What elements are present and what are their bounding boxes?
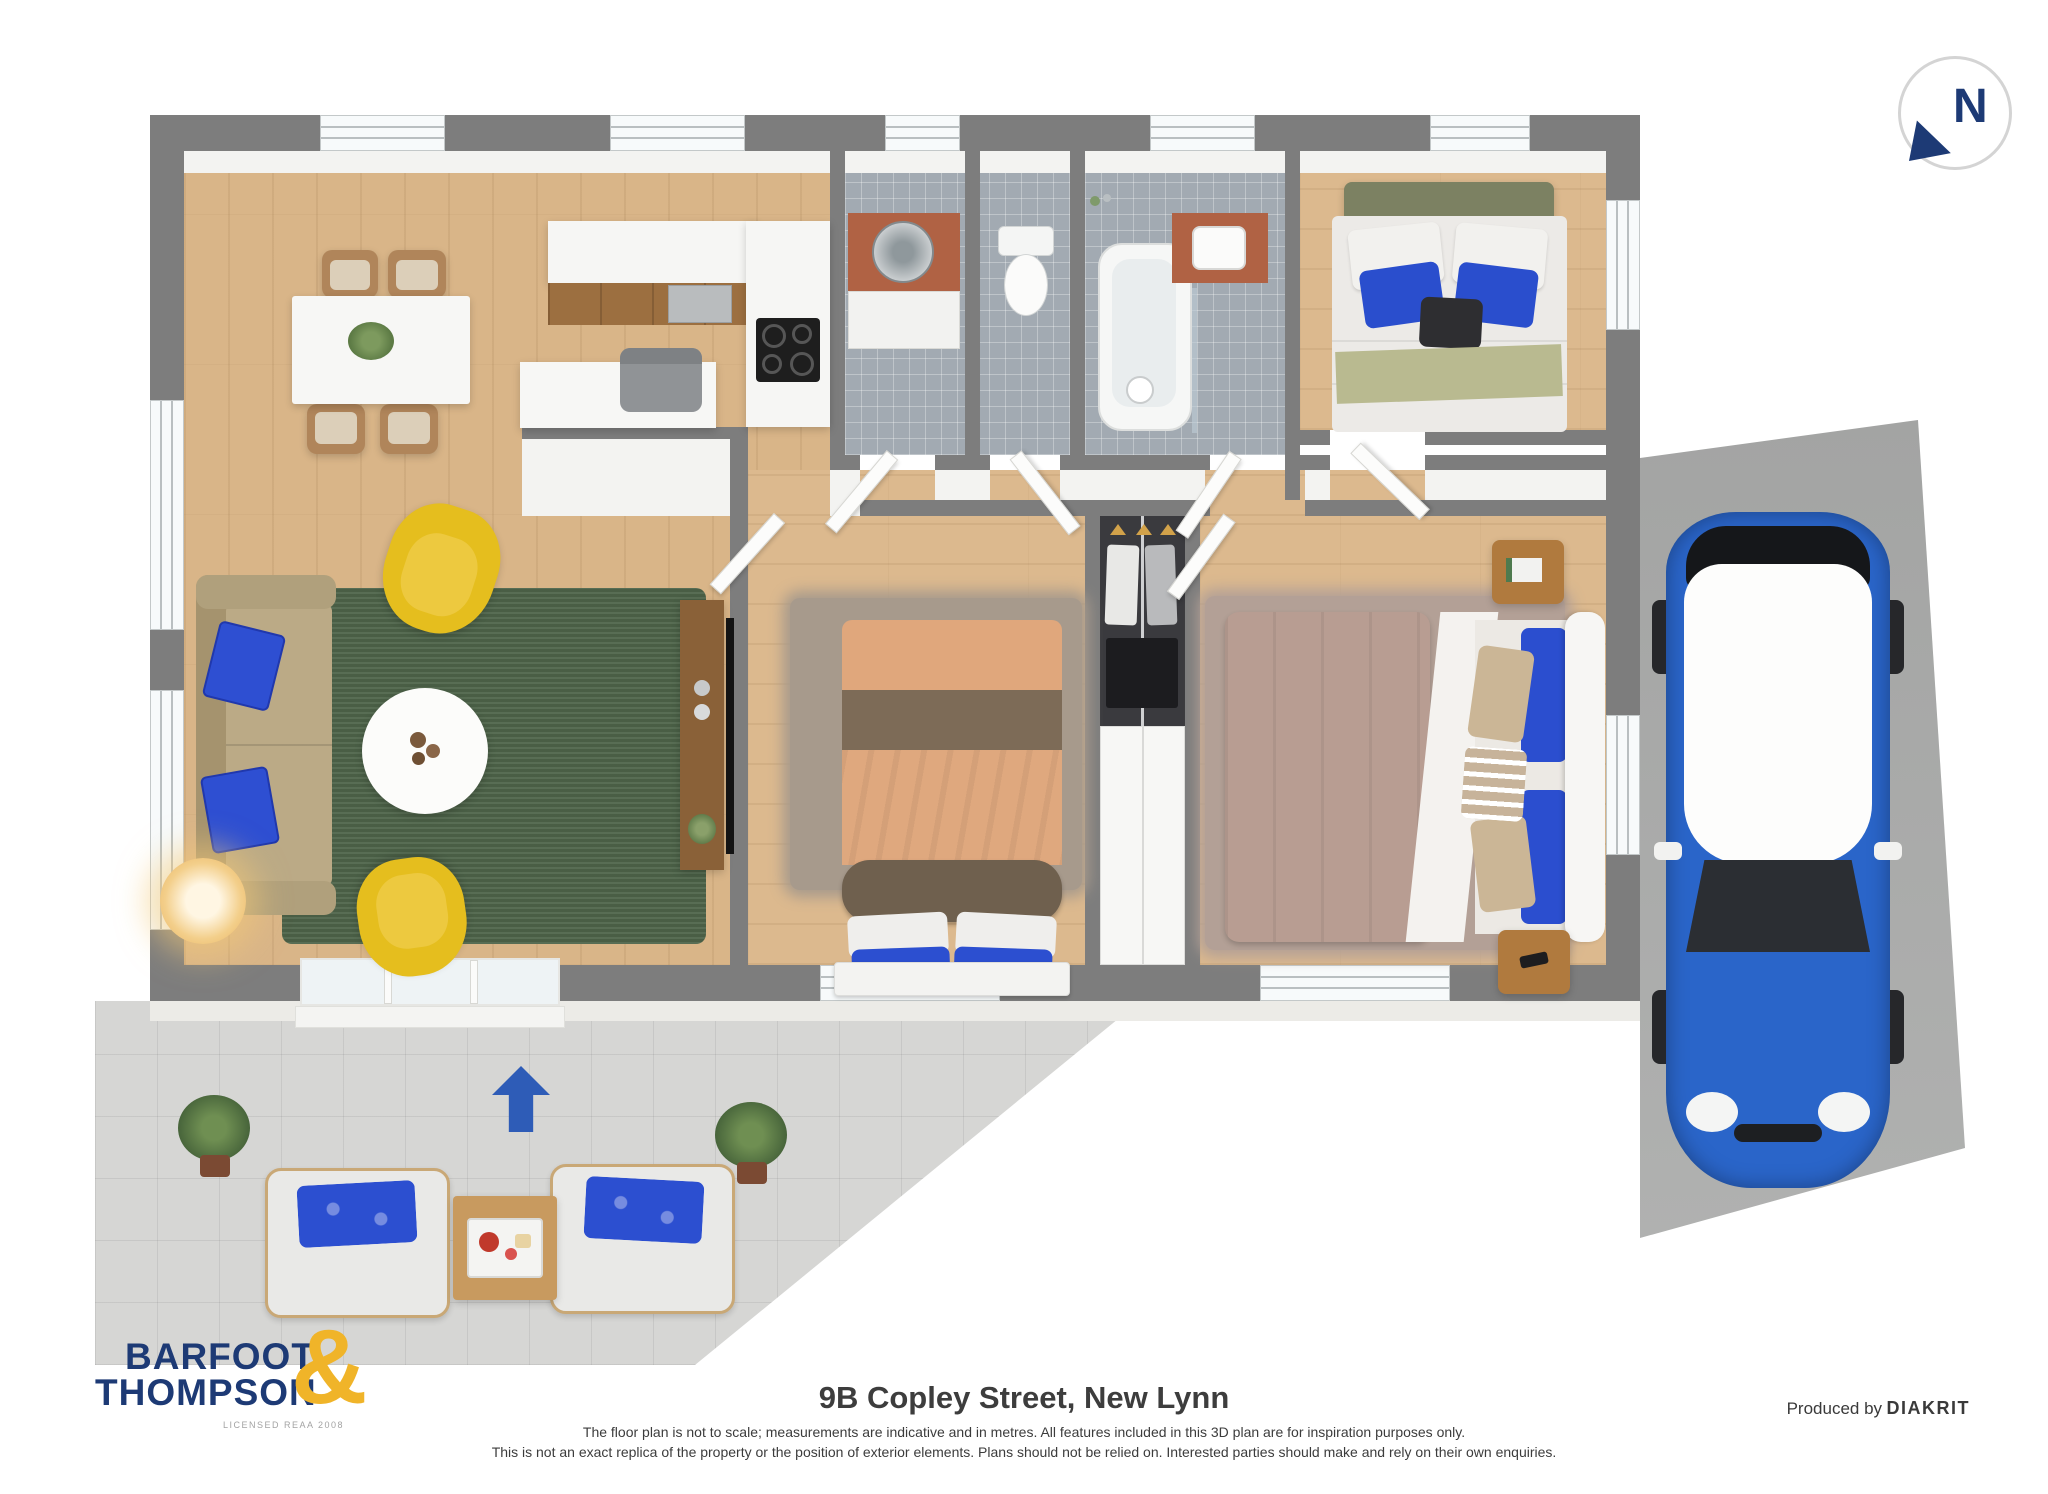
bathroom-window (1150, 115, 1255, 151)
wall-bedrooms-north (1305, 500, 1606, 516)
wall-junction (1285, 455, 1300, 500)
wall-laundry-wc (965, 151, 980, 455)
kitchen-window (610, 115, 745, 151)
wall-kitchen-hall-face (522, 439, 748, 516)
laundry-sink (872, 221, 934, 283)
outdoor-pillow-blue (583, 1176, 704, 1244)
remote (1519, 951, 1549, 969)
nightstand (1492, 540, 1564, 604)
wall-top (960, 115, 1150, 151)
shower-screen (1192, 288, 1197, 433)
wall-left (150, 630, 184, 690)
dishwasher (668, 285, 732, 323)
dining-table (292, 296, 470, 404)
folded-clothes (1106, 638, 1178, 708)
toilet-cistern (998, 226, 1054, 256)
wall-top-face (184, 151, 1606, 173)
wall-bedroom1-south (1300, 430, 1330, 445)
dining-side-window (150, 400, 184, 630)
shower-head (1126, 376, 1154, 404)
plant-pot (200, 1155, 230, 1177)
compass-label: N (1953, 83, 1988, 131)
master-side-window (1606, 715, 1640, 855)
bedroom1-side-window (1606, 200, 1640, 330)
entry-threshold (295, 1006, 565, 1028)
car-headlight (1818, 1092, 1870, 1132)
disclaimer-line1: The floor plan is not to scale; measurem… (0, 1424, 2048, 1440)
master-bed (1225, 612, 1605, 942)
bed-duvet-stripe (842, 690, 1062, 755)
bath-bottles (1090, 196, 1100, 206)
vanity-counter (1172, 213, 1268, 283)
wall-right (1606, 330, 1640, 715)
wall-bed2-wardrobe (1085, 516, 1100, 965)
vanity-sink (1192, 226, 1246, 270)
bedroom2-bed (842, 620, 1062, 965)
wardrobe-door-seam (1142, 727, 1144, 964)
car (1658, 512, 1898, 1188)
serving-tray (467, 1218, 543, 1278)
wall-hall-north (935, 455, 990, 470)
dining-window (320, 115, 445, 151)
burner (762, 324, 786, 348)
sofa-pillow-blue (200, 766, 281, 855)
bed-pillow-striped (1461, 746, 1528, 822)
bed-duvet-stripe (842, 620, 1062, 695)
toilet-bowl (1004, 254, 1048, 316)
media-console (680, 600, 724, 870)
car-roof (1684, 564, 1872, 864)
coffee-table (362, 688, 488, 814)
bed-throw (1335, 344, 1563, 404)
wall-top (445, 115, 610, 151)
table-decor (412, 752, 425, 765)
bed-pillow-dark (1419, 296, 1484, 349)
bed-duvet-stripe (842, 750, 1062, 865)
living-rug (282, 588, 706, 944)
dining-chair (380, 404, 438, 454)
compass: N (1898, 56, 2012, 170)
laundry-cabinet (848, 291, 960, 349)
disclaimer-line2: This is not an exact replica of the prop… (0, 1444, 2048, 1460)
plant-pot (737, 1162, 767, 1184)
car-windshield (1686, 860, 1870, 952)
wall-right (1606, 115, 1640, 200)
outdoor-pillow-blue (296, 1180, 417, 1248)
wall-bath-bed1 (1285, 151, 1300, 455)
dining-chair (388, 250, 446, 298)
outdoor-table (453, 1196, 557, 1300)
console-plant (688, 814, 716, 844)
wall-hall-north (1300, 455, 1330, 470)
table-decor (410, 732, 426, 748)
laundry-counter (848, 213, 960, 291)
sofa-armrest (196, 575, 336, 609)
table-decor (426, 744, 440, 758)
wall-top (745, 115, 885, 151)
console-candle (694, 704, 710, 720)
nightstand (1498, 930, 1570, 994)
dining-chair (322, 250, 378, 298)
armchair-seat (393, 526, 486, 624)
potted-plant (178, 1095, 252, 1183)
island-chair-back (620, 348, 702, 364)
bedroom1-window (1430, 115, 1530, 151)
burner (762, 354, 782, 374)
floor-plan-canvas: N BARFOOT THOMPSON & LICENSED REAA 2008 … (0, 0, 2048, 1494)
wall-wc-bath (1070, 151, 1085, 455)
wall-left (150, 115, 184, 400)
chair-cushion (330, 260, 370, 290)
wall-hall-north (1425, 455, 1606, 470)
laundry-window (885, 115, 960, 151)
logo-line1: BARFOOT (125, 1338, 315, 1375)
teacup (505, 1248, 517, 1260)
hanger-icon (1160, 524, 1176, 535)
chair-cushion (315, 412, 357, 444)
car-mirror (1874, 842, 1902, 860)
kitchen-counter (548, 221, 758, 283)
console-candle (694, 680, 710, 696)
slider-frame (470, 960, 478, 1004)
cooktop (756, 318, 820, 382)
bedroom2-bed-base (834, 962, 1070, 996)
chair-cushion (396, 260, 438, 290)
wall-kitchen-laundry (830, 151, 845, 455)
wall-kitchen-hall (522, 427, 748, 439)
outdoor-chair (265, 1168, 450, 1318)
car-mirror (1654, 842, 1682, 860)
hanger-icon (1136, 524, 1152, 535)
wall-top (1255, 115, 1430, 151)
hanging-shirt (1105, 544, 1140, 625)
floor-lamp (160, 858, 246, 944)
island-chair (620, 348, 702, 412)
plant-foliage (715, 1102, 787, 1168)
teapot (479, 1232, 499, 1252)
wall-front (560, 965, 820, 1001)
hanger-icon (1110, 524, 1126, 535)
outdoor-chair (550, 1164, 735, 1314)
plant-foliage (178, 1095, 250, 1161)
wall-bedrooms-north (860, 500, 1210, 516)
north-arrow-icon (1909, 117, 1953, 161)
producer-name: DIAKRIT (1887, 1398, 1971, 1418)
bed-blanket-roll (842, 860, 1062, 922)
producer-credit: Produced by DIAKRIT (1540, 1398, 1970, 1419)
wall-hall-north (830, 455, 860, 470)
burner (790, 352, 814, 376)
wall-front (150, 965, 300, 1001)
master-front-window (1260, 965, 1450, 1001)
car-headlight (1686, 1092, 1738, 1132)
burner (792, 324, 812, 344)
armchair-seat (372, 869, 452, 952)
wardrobe-sliding-door (1100, 726, 1185, 965)
chair-cushion (388, 412, 430, 444)
table-plant (348, 322, 394, 360)
wall-hall-north (1060, 455, 1210, 470)
books (1506, 558, 1542, 582)
biscuit (515, 1234, 531, 1248)
wall-tv (726, 618, 734, 854)
bed-pillow (1470, 815, 1537, 913)
car-grille (1734, 1124, 1822, 1142)
dining-chair (307, 404, 365, 454)
bath-bottles (1103, 194, 1111, 202)
bed-headboard (1565, 612, 1605, 942)
produced-by-label: Produced by (1787, 1399, 1882, 1418)
bedroom1-bed (1332, 182, 1567, 450)
bed-duvet (1225, 612, 1430, 942)
